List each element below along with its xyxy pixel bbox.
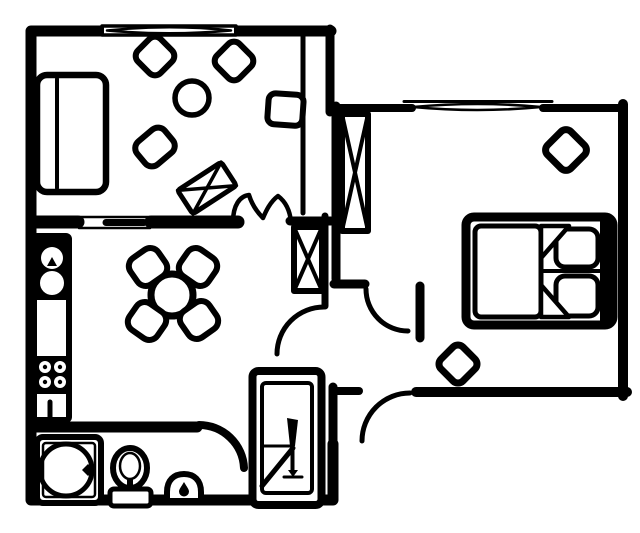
bathroom-hall-curved-wall (199, 425, 244, 468)
wall-cabinet (267, 93, 304, 126)
stove-burner-dot-3 (43, 380, 47, 384)
group-shower-wc (253, 371, 322, 505)
bedroom-chair-diamond-bottom (436, 342, 480, 386)
bedroom-window-lens (413, 104, 541, 110)
stove-burner-dot-4 (58, 380, 62, 384)
bedroom-chair-diamond-top (543, 127, 590, 174)
kitchen-door-swing (277, 307, 324, 354)
floor-plan-image (0, 0, 640, 533)
armchair-tilted (132, 124, 179, 170)
bed-blanket (475, 226, 541, 317)
bedroom-door-swing (366, 289, 408, 331)
sink-basin-2 (40, 271, 64, 295)
coffee-table-round (175, 81, 209, 115)
entry-door-swing (362, 393, 410, 441)
floor-plan-svg (0, 0, 640, 533)
group-living-room (37, 33, 304, 214)
group-bathroom (37, 437, 201, 506)
armchair-diamond-2 (211, 38, 256, 83)
toilet-tank (110, 489, 151, 506)
stove-burner-dot-1 (43, 365, 47, 369)
sofa-outline (37, 75, 106, 192)
stove-burner-dot-2 (58, 365, 62, 369)
group-bedroom (342, 114, 613, 386)
group-hallway (294, 227, 322, 291)
group-kitchen-dining (34, 236, 222, 420)
